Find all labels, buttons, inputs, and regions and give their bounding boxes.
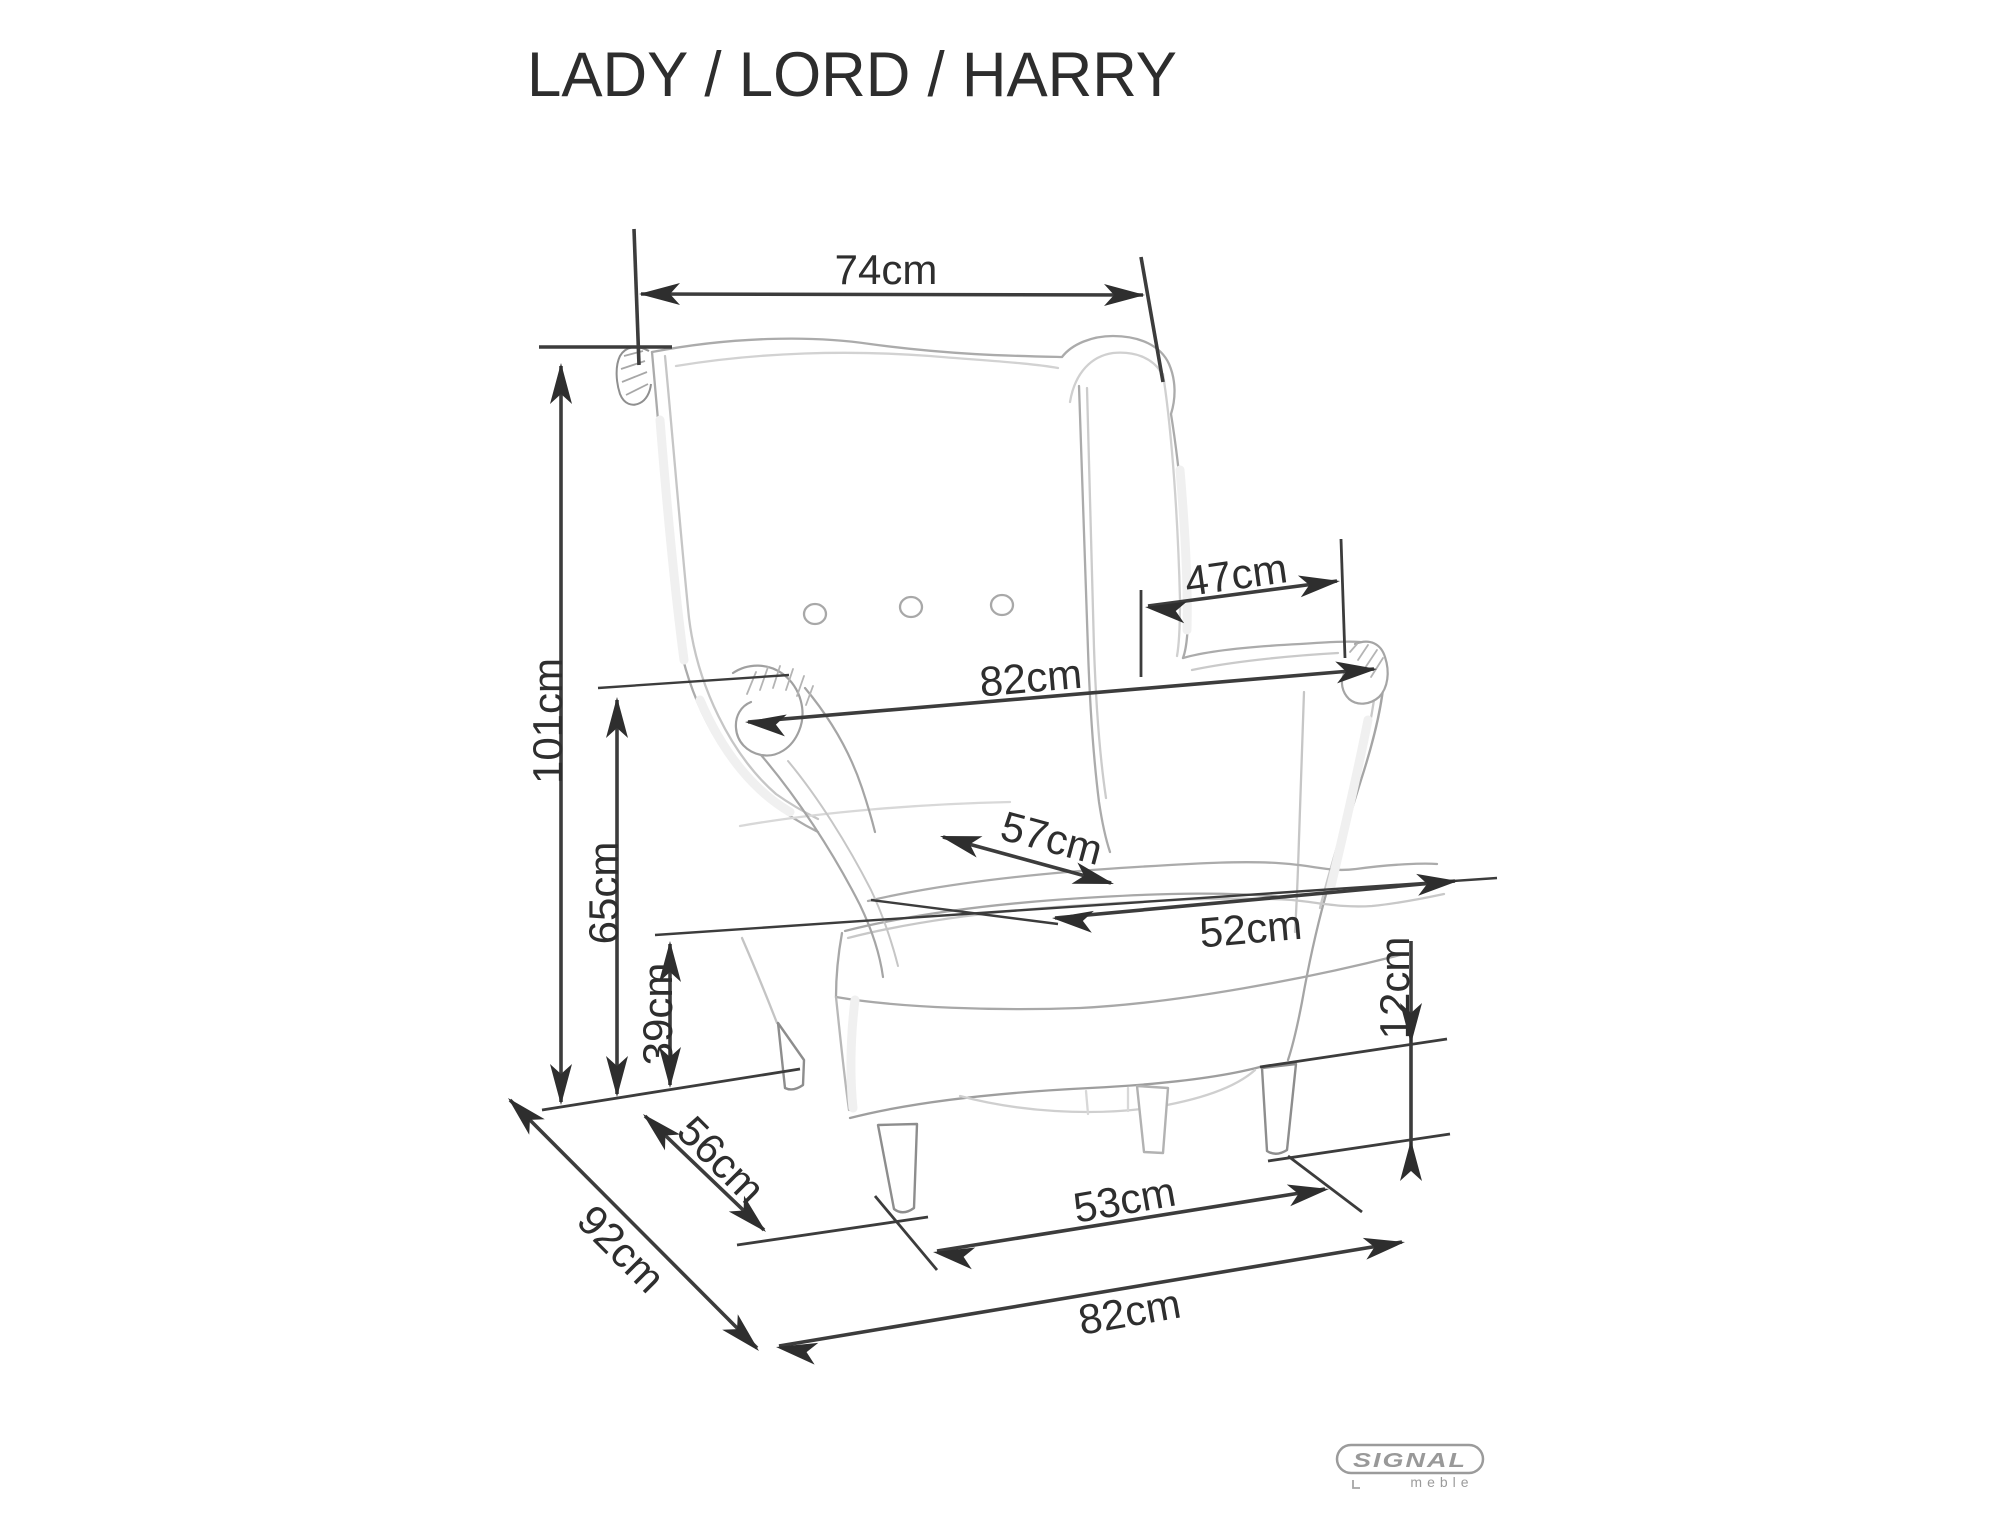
svg-text:meble: meble [1410, 1474, 1473, 1490]
svg-text:52cm: 52cm [1198, 901, 1304, 957]
svg-text:74cm: 74cm [835, 246, 938, 293]
svg-text:SIGNAL: SIGNAL [1353, 1449, 1467, 1472]
svg-text:LADY / LORD / HARRY: LADY / LORD / HARRY [527, 40, 1177, 110]
svg-text:101cm: 101cm [524, 658, 571, 784]
svg-text:12cm: 12cm [1371, 937, 1418, 1040]
svg-text:82cm: 82cm [978, 650, 1084, 706]
svg-text:65cm: 65cm [580, 842, 627, 945]
svg-text:39cm: 39cm [634, 963, 681, 1066]
